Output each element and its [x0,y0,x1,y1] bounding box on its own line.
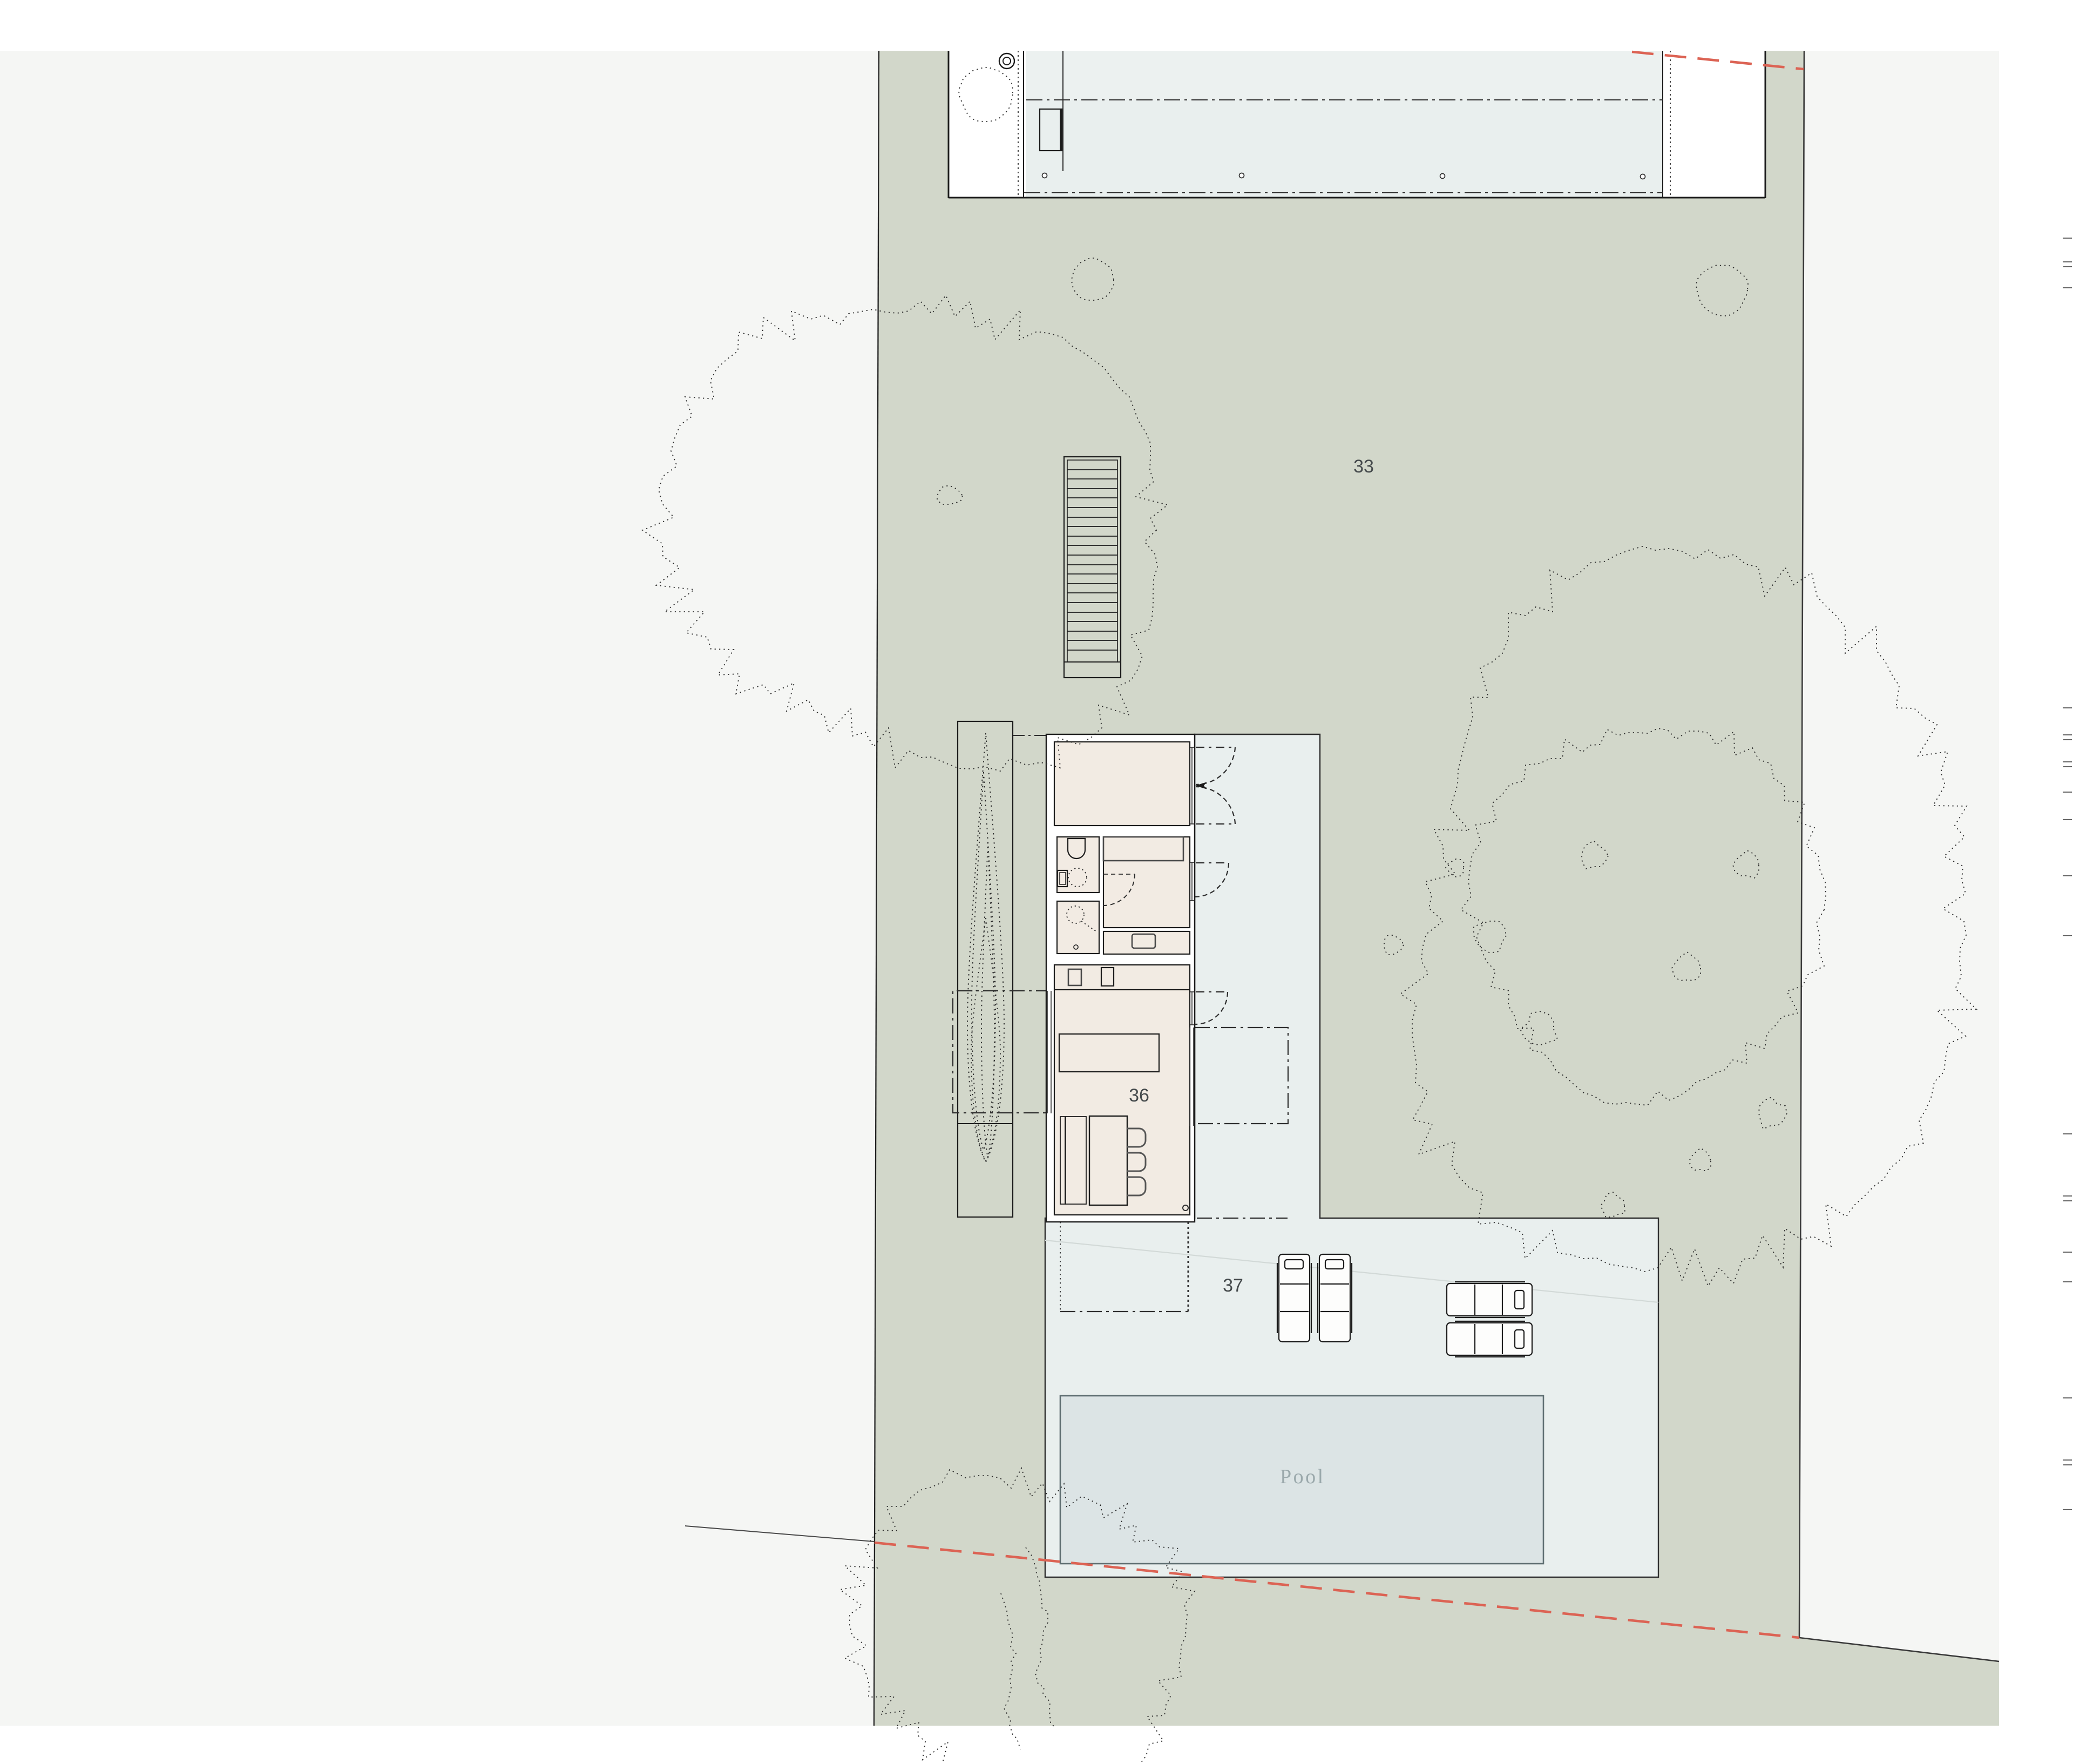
svg-text:33: 33 [1353,456,1374,477]
svg-text:Pool: Pool [1280,1465,1325,1488]
svg-text:37: 37 [1223,1275,1243,1296]
svg-text:36: 36 [1129,1085,1149,1106]
